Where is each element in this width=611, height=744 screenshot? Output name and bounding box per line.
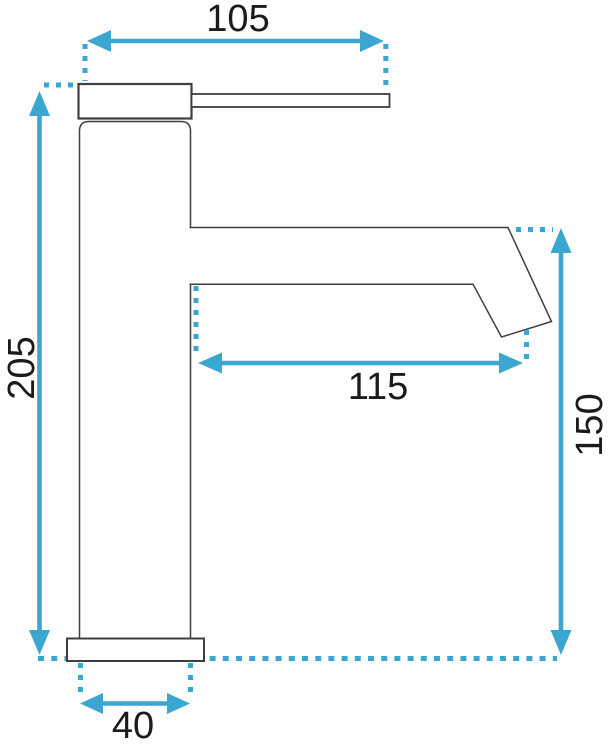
faucet-base-plate bbox=[67, 639, 204, 662]
dim-label-top-width: 105 bbox=[206, 0, 269, 40]
faucet-spout bbox=[190, 228, 552, 338]
arrowhead-spout-reach-right-icon bbox=[499, 353, 523, 374]
technical-drawing: 105 205 115 150 40 bbox=[0, 0, 611, 744]
faucet-outline bbox=[67, 84, 552, 661]
faucet-handle-cap bbox=[79, 84, 192, 119]
arrowhead-top-width-left-icon bbox=[87, 30, 111, 52]
faucet-body bbox=[80, 122, 191, 639]
arrowhead-spout-height-down-icon bbox=[551, 630, 572, 655]
arrowhead-base-width-right-icon bbox=[167, 693, 190, 714]
arrowhead-total-height-up-icon bbox=[29, 91, 50, 116]
dim-label-base-width: 40 bbox=[112, 705, 154, 744]
arrowhead-spout-height-up-icon bbox=[551, 228, 572, 253]
dim-label-spout-reach: 115 bbox=[348, 366, 409, 408]
arrowhead-spout-reach-left-icon bbox=[198, 353, 222, 374]
arrowhead-total-height-down-icon bbox=[29, 630, 50, 655]
dim-label-spout-height: 150 bbox=[569, 393, 611, 456]
arrowhead-top-width-right-icon bbox=[360, 30, 384, 52]
dim-label-total-height: 205 bbox=[1, 336, 43, 399]
arrowhead-base-width-left-icon bbox=[80, 693, 103, 714]
faucet-lever bbox=[192, 94, 390, 107]
